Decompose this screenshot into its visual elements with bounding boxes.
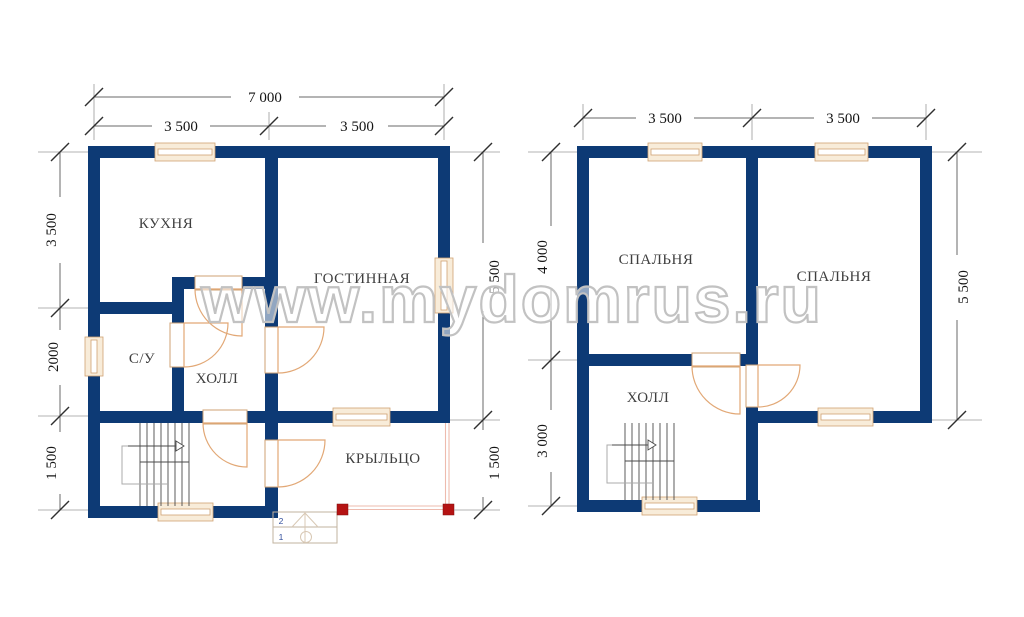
window [642, 497, 697, 515]
room-label-porch: КРЫЛЬЦО [345, 451, 420, 467]
watermark-text: www.mydomrus.ru [200, 262, 823, 336]
dim-left-bottom: 3 000 [535, 424, 551, 458]
dim-left-bottom: 1 500 [44, 446, 60, 480]
window [815, 143, 868, 161]
floor1-staircase [122, 423, 189, 506]
room-label-hall: ХОЛЛ [627, 390, 670, 406]
room-label-hall: ХОЛЛ [196, 371, 239, 387]
step-number-2: 2 [279, 516, 284, 526]
porch-post [337, 504, 348, 515]
door-bedroom-right [746, 365, 800, 407]
dim-total-width: 7 000 [248, 90, 282, 106]
window [158, 503, 213, 521]
window [85, 337, 103, 376]
door-bedroom-left [692, 353, 740, 414]
dim-right: 5 500 [956, 270, 972, 304]
floor-plan-sheet: 2 1 [0, 0, 1024, 617]
dim-width-right: 3 500 [340, 119, 374, 135]
dim-left-mid: 2000 [46, 342, 62, 372]
door-stair-room [203, 410, 247, 467]
window [818, 408, 873, 426]
window [333, 408, 390, 426]
floor2-staircase [607, 423, 674, 500]
stair-direction-arrow [648, 440, 656, 450]
window [155, 143, 215, 161]
floor1-entry-steps: 2 1 [273, 512, 337, 543]
porch-post [443, 504, 454, 515]
room-label-kitchen: КУХНЯ [139, 216, 194, 232]
floor1-porch-deck [337, 423, 454, 515]
stair-direction-arrow [176, 441, 184, 451]
dim-width-left: 3 500 [164, 119, 198, 135]
dim-width-right: 3 500 [826, 111, 860, 127]
dim-left-top: 3 500 [44, 213, 60, 247]
step-number-1: 1 [279, 532, 284, 542]
door-porch [265, 440, 325, 487]
room-label-bath: С/У [129, 351, 155, 367]
window [648, 143, 702, 161]
dim-right-bottom: 1 500 [487, 446, 503, 480]
dim-width-left: 3 500 [648, 111, 682, 127]
